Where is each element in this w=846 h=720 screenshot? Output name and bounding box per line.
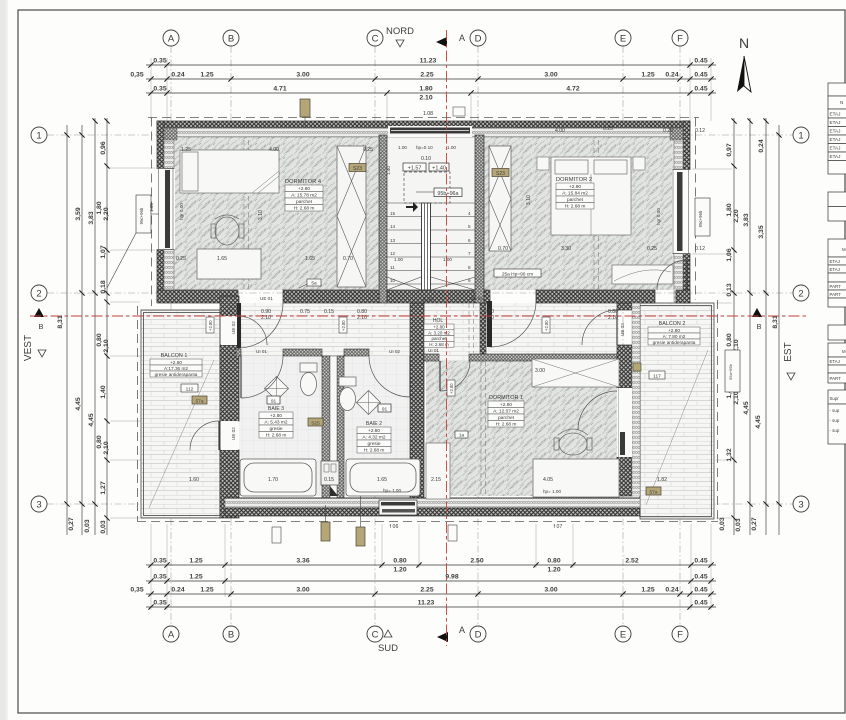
svg-text:4.05: 4.05	[543, 477, 553, 483]
svg-text:0,35: 0,35	[130, 72, 143, 79]
svg-text:4,45: 4,45	[755, 415, 762, 428]
svg-text:DORMITOR 4: DORMITOR 4	[285, 179, 322, 185]
svg-text:hp=0.10: hp=0.10	[416, 145, 433, 150]
svg-text:1.00: 1.00	[443, 257, 452, 262]
svg-text:1.08: 1.08	[423, 111, 433, 117]
svg-text:- sup: - sup	[830, 418, 840, 423]
svg-text:0,80: 0,80	[96, 435, 103, 448]
svg-text:4.00: 4.00	[269, 147, 279, 153]
svg-text:parchet: parchet	[431, 336, 447, 341]
svg-text:B: B	[756, 322, 761, 331]
svg-text:parchet: parchet	[567, 197, 584, 203]
svg-text:hgr 0.00: hgr 0.00	[179, 203, 184, 220]
svg-text:3.36: 3.36	[296, 558, 309, 565]
svg-text:S25: S25	[311, 420, 320, 426]
svg-text:8,31: 8,31	[772, 315, 779, 328]
svg-text:A: 4.32 m2: A: 4.32 m2	[362, 435, 386, 441]
svg-text:+1.57: +1.57	[408, 165, 422, 171]
svg-text:BAIE 3: BAIE 3	[268, 406, 284, 412]
svg-text:gresie: gresie	[269, 426, 282, 432]
svg-text:DORMITOR 2: DORMITOR 2	[556, 177, 592, 183]
svg-text:UE 04: UE 04	[620, 434, 625, 447]
svg-text:0.12: 0.12	[695, 128, 705, 134]
svg-text:3,83: 3,83	[88, 211, 95, 224]
svg-text:+2.80: +2.80	[341, 320, 346, 331]
svg-text:95b+96a: 95b+96a	[437, 191, 458, 197]
svg-text:H: 2.68 m: H: 2.68 m	[294, 206, 315, 212]
svg-text:B: B	[38, 322, 43, 331]
svg-text:N: N	[840, 100, 843, 105]
svg-text:3.30: 3.30	[561, 246, 571, 252]
svg-text:UE 02: UE 02	[231, 427, 236, 440]
svg-text:1: 1	[36, 131, 41, 142]
svg-text:A: 7.80 m2: A: 7.80 m2	[663, 334, 686, 339]
svg-text:0.24: 0.24	[171, 72, 184, 79]
svg-text:A: 3.20 m2: A: 3.20 m2	[428, 330, 450, 335]
svg-text:1.65: 1.65	[377, 477, 387, 483]
svg-text:+2.80: +2.80	[298, 186, 310, 192]
svg-text:2,20: 2,20	[103, 207, 110, 220]
svg-text:VEST: VEST	[23, 335, 34, 361]
svg-text:3.10: 3.10	[526, 195, 532, 205]
svg-text:3.00: 3.00	[296, 587, 309, 594]
svg-text:0.70: 0.70	[343, 256, 353, 262]
svg-text:PART: PART	[830, 376, 842, 381]
svg-text:f 06: f 06	[390, 524, 399, 530]
svg-text:SUD: SUD	[378, 643, 398, 654]
svg-text:A: A	[168, 630, 175, 641]
svg-text:4: 4	[468, 211, 471, 216]
svg-text:2: 2	[36, 289, 41, 300]
svg-text:ETAJ: ETAJ	[830, 112, 841, 117]
svg-text:HOL: HOL	[433, 318, 444, 324]
svg-text:1,80: 1,80	[726, 203, 733, 216]
svg-text:0.24: 0.24	[171, 587, 184, 594]
svg-text:E: E	[620, 630, 626, 641]
svg-text:+2.80: +2.80	[170, 360, 182, 365]
svg-text:1.25: 1.25	[200, 72, 213, 79]
svg-text:D: D	[475, 630, 482, 641]
svg-text:H: 2.68 m: H: 2.68 m	[364, 448, 385, 454]
svg-text:M: M	[842, 247, 846, 252]
svg-text:3,83: 3,83	[743, 213, 750, 226]
svg-text:3: 3	[798, 500, 803, 511]
svg-text:3.00: 3.00	[535, 368, 545, 374]
svg-text:+2.80: +2.80	[449, 383, 454, 394]
svg-text:parchet: parchet	[296, 199, 313, 205]
svg-text:3,59: 3,59	[75, 207, 82, 220]
svg-text:UE 01: UE 01	[260, 296, 273, 301]
svg-text:UE 02: UE 02	[231, 321, 236, 334]
svg-text:0.35: 0.35	[153, 86, 166, 93]
svg-text:1.65: 1.65	[217, 256, 227, 262]
svg-text:0.45: 0.45	[694, 587, 707, 594]
svg-text:H: 2.68 m: H: 2.68 m	[496, 422, 517, 428]
svg-text:5: 5	[468, 224, 471, 229]
svg-text:A: 5.43 m2: A: 5.43 m2	[264, 420, 288, 426]
svg-text:ETAJ: ETAJ	[830, 146, 841, 151]
svg-text:+2.80: +2.80	[368, 428, 380, 434]
svg-text:hp= 1.00: hp= 1.00	[383, 488, 401, 493]
svg-text:11.23: 11.23	[420, 58, 437, 65]
svg-text:+2.80: +2.80	[208, 320, 213, 331]
svg-text:ETAJ: ETAJ	[830, 154, 841, 159]
svg-text:f 07: f 07	[554, 524, 563, 530]
svg-text:0.25: 0.25	[647, 246, 657, 252]
svg-text:5a: 5a	[311, 281, 317, 287]
svg-text:2.52: 2.52	[625, 558, 638, 565]
svg-text:UI 02: UI 02	[389, 349, 400, 354]
svg-text:2.15: 2.15	[431, 477, 441, 483]
svg-text:0,96: 0,96	[100, 141, 107, 154]
svg-text:0.15: 0.15	[324, 477, 334, 483]
svg-text:1,32: 1,32	[726, 448, 733, 461]
svg-text:0,27: 0,27	[751, 517, 758, 530]
svg-text:1.00: 1.00	[394, 257, 403, 262]
svg-text:4,45: 4,45	[88, 413, 95, 426]
svg-text:+1.40: +1.40	[432, 165, 446, 171]
svg-text:+2.80: +2.80	[544, 320, 549, 331]
svg-text:0,03: 0,03	[100, 520, 107, 533]
svg-text:0.35: 0.35	[153, 600, 166, 607]
svg-text:0,27: 0,27	[68, 517, 75, 530]
svg-text:0.35: 0.35	[153, 558, 166, 565]
svg-text:1.00: 1.00	[398, 145, 407, 150]
svg-text:117: 117	[653, 373, 661, 379]
svg-text:0,03: 0,03	[719, 517, 726, 530]
svg-text:1,27: 1,27	[100, 481, 107, 494]
svg-text:0.45: 0.45	[694, 574, 707, 581]
svg-text:1.25: 1.25	[641, 72, 654, 79]
svg-text:95c+96b: 95c+96b	[698, 210, 703, 227]
svg-text:hgr 0.00: hgr 0.00	[656, 208, 661, 225]
svg-text:H: 2.68 m: H: 2.68 m	[429, 342, 449, 347]
svg-text:2.25: 2.25	[420, 587, 433, 594]
svg-text:1.25: 1.25	[181, 147, 191, 153]
svg-text:0.24: 0.24	[665, 587, 678, 594]
svg-text:+2.80: +2.80	[569, 184, 581, 190]
svg-text:+2.80: +2.80	[270, 413, 282, 419]
svg-text:1.60: 1.60	[189, 477, 199, 483]
svg-text:14: 14	[390, 224, 396, 229]
svg-text:D: D	[475, 34, 482, 45]
svg-text:gresie antiderapanta: gresie antiderapanta	[653, 340, 696, 345]
svg-text:0.45: 0.45	[694, 58, 707, 65]
svg-text:1.80: 1.80	[419, 86, 432, 93]
svg-text:EST: EST	[783, 342, 794, 361]
svg-text:4.72: 4.72	[566, 86, 579, 93]
svg-text:4,45: 4,45	[743, 401, 750, 414]
svg-text:1.20: 1.20	[393, 567, 406, 574]
svg-text:NORD: NORD	[386, 26, 414, 37]
svg-text:3.00: 3.00	[544, 72, 557, 79]
svg-text:PART: PART	[830, 292, 842, 297]
svg-text:1.20: 1.20	[547, 567, 560, 574]
svg-text:F: F	[677, 34, 683, 45]
svg-text:13: 13	[390, 238, 396, 243]
svg-text:gresie antiderapanta: gresie antiderapanta	[155, 372, 198, 377]
svg-text:C: C	[372, 34, 379, 45]
svg-text:1,80: 1,80	[96, 201, 103, 214]
svg-text:0.15: 0.15	[324, 309, 334, 315]
svg-text:9.98: 9.98	[445, 574, 458, 581]
svg-text:0.75: 0.75	[300, 309, 310, 315]
svg-text:S23: S23	[353, 166, 362, 172]
svg-text:H: 2.68 m: H: 2.68 m	[266, 433, 287, 439]
svg-text:0,03: 0,03	[84, 519, 91, 532]
svg-text:E: E	[620, 34, 626, 45]
svg-text:0.25: 0.25	[603, 126, 613, 132]
svg-text:0.10: 0.10	[421, 156, 431, 162]
svg-text:0.45: 0.45	[694, 558, 707, 565]
svg-text:H: 2.68 m: H: 2.68 m	[565, 204, 586, 210]
svg-text:+2.80: +2.80	[668, 328, 680, 333]
svg-text:0.45: 0.45	[694, 72, 707, 79]
svg-text:1.40: 1.40	[386, 166, 391, 175]
svg-text:0.25: 0.25	[176, 256, 186, 262]
svg-text:2,10: 2,10	[103, 339, 110, 352]
svg-text:0,80: 0,80	[96, 333, 103, 346]
svg-text:+2.80: +2.80	[500, 402, 512, 408]
svg-text:4.00: 4.00	[555, 128, 565, 134]
svg-text:3.00: 3.00	[544, 587, 557, 594]
svg-text:parchet: parchet	[498, 415, 515, 421]
svg-text:4,45: 4,45	[75, 397, 82, 410]
svg-text:S23: S23	[496, 171, 505, 177]
svg-text:A:17.36 m2: A:17.36 m2	[164, 366, 188, 371]
svg-text:1.65: 1.65	[305, 256, 315, 262]
svg-text:1.82: 1.82	[657, 477, 667, 483]
svg-text:2.50: 2.50	[423, 297, 433, 303]
svg-text:11: 11	[390, 265, 395, 270]
svg-text:A: 15.78 m2: A: 15.78 m2	[291, 193, 317, 199]
svg-text:6: 6	[468, 238, 471, 243]
svg-text:ETAJ: ETAJ	[830, 259, 840, 264]
svg-text:F: F	[677, 630, 683, 641]
svg-text:1.25: 1.25	[189, 574, 202, 581]
svg-text:1.25: 1.25	[641, 587, 654, 594]
svg-text:ETAJ: ETAJ	[830, 137, 841, 142]
svg-text:3: 3	[36, 500, 41, 511]
svg-text:0.45: 0.45	[694, 86, 707, 93]
svg-text:1,40: 1,40	[100, 385, 107, 398]
svg-text:ETAJ: ETAJ	[830, 267, 840, 272]
svg-text:0.35: 0.35	[153, 58, 166, 65]
svg-text:91: 91	[271, 398, 277, 404]
svg-text:2,20: 2,20	[733, 209, 740, 222]
svg-text:A: A	[459, 33, 465, 43]
svg-text:BALCON 2: BALCON 2	[659, 321, 686, 327]
svg-text:UE 02: UE 02	[470, 296, 483, 301]
svg-text:3.10: 3.10	[258, 210, 264, 220]
svg-text:95a+95b: 95a+95b	[728, 363, 733, 379]
svg-text:12: 12	[390, 251, 396, 256]
svg-text:0.80: 0.80	[547, 558, 560, 565]
svg-text:1: 1	[798, 131, 803, 142]
svg-text:57a: 57a	[195, 398, 203, 404]
svg-text:8,31: 8,31	[57, 315, 64, 328]
svg-text:0,24: 0,24	[758, 139, 765, 152]
svg-text:Supr: Supr	[830, 396, 840, 401]
svg-text:0,80: 0,80	[726, 333, 733, 346]
svg-text:2,10: 2,10	[103, 441, 110, 454]
svg-text:A: A	[459, 625, 465, 635]
svg-text:9: 9	[468, 278, 471, 283]
svg-text:1,06: 1,06	[726, 248, 733, 261]
svg-text:0.80: 0.80	[393, 558, 406, 565]
svg-text:1.05: 1.05	[149, 203, 154, 212]
svg-text:M: M	[842, 349, 846, 354]
svg-text:0.70: 0.70	[498, 246, 508, 252]
svg-text:2.50: 2.50	[470, 558, 483, 565]
svg-text:91: 91	[382, 406, 388, 412]
svg-text:A: 12.07 m2: A: 12.07 m2	[493, 409, 519, 415]
svg-text:gresie: gresie	[367, 441, 380, 447]
svg-text:0,35: 0,35	[130, 587, 143, 594]
svg-text:10: 10	[390, 278, 396, 283]
svg-text:25a Hp=90 cm: 25a Hp=90 cm	[502, 271, 533, 277]
svg-text:A: A	[168, 34, 175, 45]
svg-text:PART: PART	[830, 284, 842, 289]
svg-text:3,35: 3,35	[758, 225, 765, 238]
svg-text:7: 7	[468, 251, 471, 256]
svg-text:- sup: - sup	[830, 408, 840, 413]
svg-text:15: 15	[390, 211, 396, 216]
svg-text:1,07: 1,07	[100, 245, 107, 258]
svg-text:+2.80: +2.80	[433, 325, 445, 330]
svg-text:2.10: 2.10	[419, 95, 432, 102]
svg-text:BALCON 1: BALCON 1	[161, 353, 188, 359]
svg-text:UI 01: UI 01	[428, 348, 439, 353]
svg-text:DORMITOR 1: DORMITOR 1	[489, 395, 523, 401]
svg-text:BAIE 2: BAIE 2	[366, 421, 382, 427]
svg-text:B: B	[228, 630, 234, 641]
svg-text:UI 01: UI 01	[256, 349, 267, 354]
svg-text:1a: 1a	[459, 433, 465, 439]
svg-text:11.23: 11.23	[418, 600, 435, 607]
svg-text:3.00: 3.00	[296, 72, 309, 79]
svg-text:4.71: 4.71	[273, 86, 286, 93]
svg-text:1.70: 1.70	[268, 477, 278, 483]
svg-text:2: 2	[798, 289, 803, 300]
svg-text:0,03: 0,03	[735, 518, 742, 531]
svg-text:57a: 57a	[649, 489, 657, 495]
svg-text:0.12: 0.12	[695, 246, 705, 252]
svg-text:- sup: - sup	[830, 428, 840, 433]
svg-text:UE 03: UE 03	[620, 323, 625, 336]
svg-text:ETAJ: ETAJ	[830, 129, 841, 134]
svg-text:0,97: 0,97	[726, 143, 733, 156]
svg-text:ETAJ: ETAJ	[830, 359, 840, 364]
svg-text:8: 8	[468, 265, 471, 270]
svg-text:C: C	[372, 630, 379, 641]
svg-text:2.25: 2.25	[420, 72, 433, 79]
svg-text:0,18: 0,18	[100, 280, 107, 293]
svg-text:B: B	[228, 34, 234, 45]
svg-text:0.35: 0.35	[153, 574, 166, 581]
svg-text:0.25: 0.25	[663, 128, 673, 134]
svg-text:1.00: 1.00	[447, 145, 456, 150]
svg-text:1.25: 1.25	[189, 558, 202, 565]
svg-text:0,13: 0,13	[726, 283, 733, 296]
svg-text:2,10: 2,10	[733, 391, 740, 404]
svg-text:ETAJ: ETAJ	[830, 120, 841, 125]
svg-text:1.25: 1.25	[200, 587, 213, 594]
svg-text:0.24: 0.24	[665, 72, 678, 79]
svg-text:hp= 1.00: hp= 1.00	[543, 489, 561, 494]
svg-text:0.25: 0.25	[363, 147, 373, 153]
svg-text:95c+96b: 95c+96b	[139, 207, 144, 224]
svg-text:112: 112	[186, 386, 194, 392]
svg-text:N: N	[739, 35, 749, 51]
svg-text:0.45: 0.45	[694, 600, 707, 607]
svg-text:A: 15.84 m2: A: 15.84 m2	[562, 191, 588, 197]
